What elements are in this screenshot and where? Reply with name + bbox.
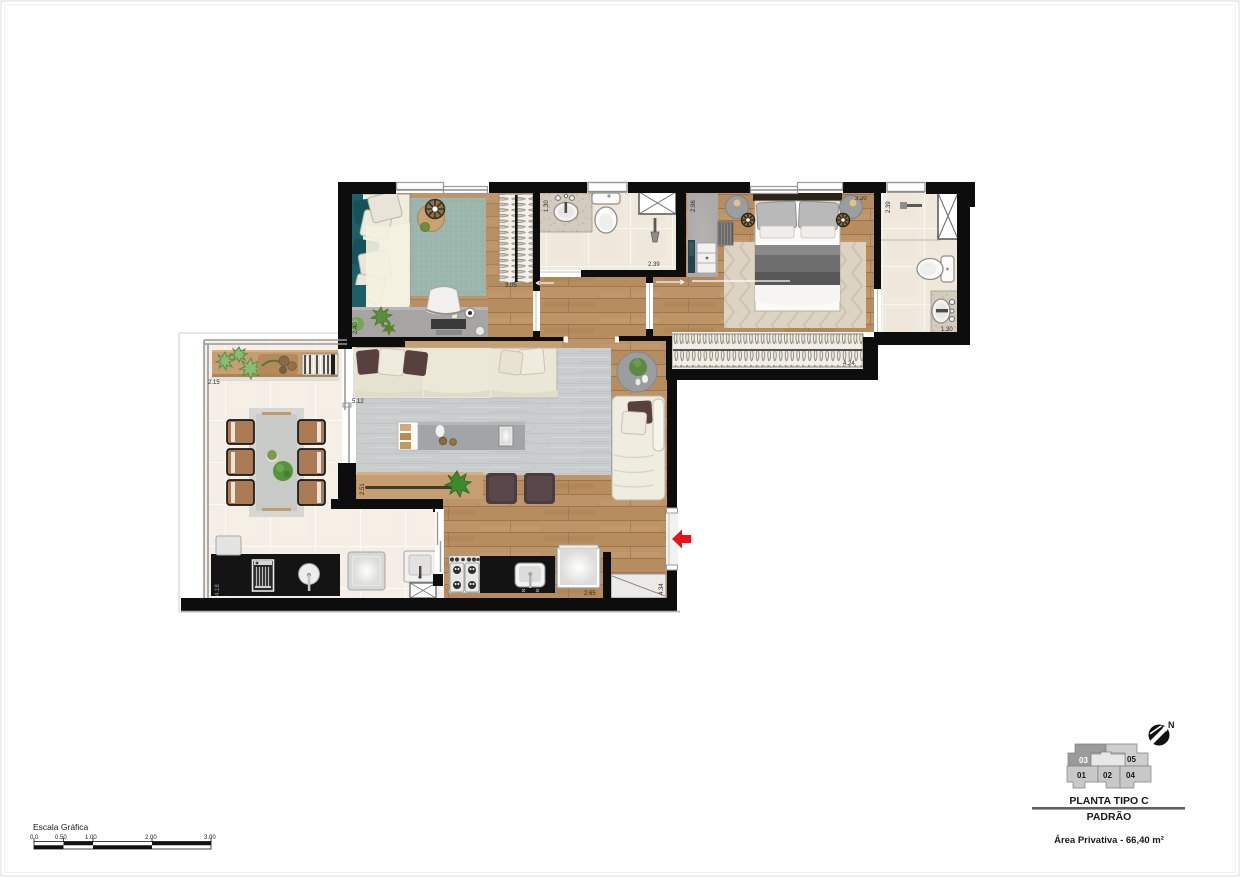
svg-text:3.05: 3.05 <box>505 283 517 289</box>
svg-text:05: 05 <box>1127 755 1136 764</box>
svg-text:Área Privativa - 66,40 m²: Área Privativa - 66,40 m² <box>1054 835 1164 846</box>
svg-text:3.20: 3.20 <box>855 196 867 202</box>
svg-text:PLANTA TIPO C: PLANTA TIPO C <box>1069 795 1149 807</box>
svg-text:1.30: 1.30 <box>544 200 550 212</box>
svg-text:02: 02 <box>1103 771 1112 780</box>
svg-text:1.00: 1.00 <box>85 835 97 841</box>
svg-text:3.00: 3.00 <box>204 835 216 841</box>
svg-text:4.18: 4.18 <box>215 584 221 596</box>
svg-text:PADRÃO: PADRÃO <box>1087 810 1132 823</box>
svg-text:2.40: 2.40 <box>353 322 359 334</box>
svg-text:0.0: 0.0 <box>30 835 39 841</box>
svg-text:2.96: 2.96 <box>691 200 697 212</box>
svg-text:2.39: 2.39 <box>648 262 660 268</box>
svg-text:2.39: 2.39 <box>886 201 892 213</box>
svg-text:2.15: 2.15 <box>208 380 220 386</box>
svg-text:5.12: 5.12 <box>352 399 364 405</box>
svg-text:1.30: 1.30 <box>941 327 953 333</box>
svg-text:2.65: 2.65 <box>584 591 596 597</box>
svg-text:2.51: 2.51 <box>360 483 366 495</box>
svg-text:04: 04 <box>1126 771 1135 780</box>
svg-text:2.00: 2.00 <box>145 835 157 841</box>
svg-text:Escala Gráfica: Escala Gráfica <box>33 822 89 832</box>
svg-text:4.34: 4.34 <box>659 583 665 595</box>
svg-text:0.50: 0.50 <box>55 835 67 841</box>
svg-text:01: 01 <box>1077 771 1086 780</box>
svg-text:4.24: 4.24 <box>843 361 855 367</box>
svg-text:03: 03 <box>1079 756 1088 765</box>
svg-text:N: N <box>1168 720 1175 730</box>
